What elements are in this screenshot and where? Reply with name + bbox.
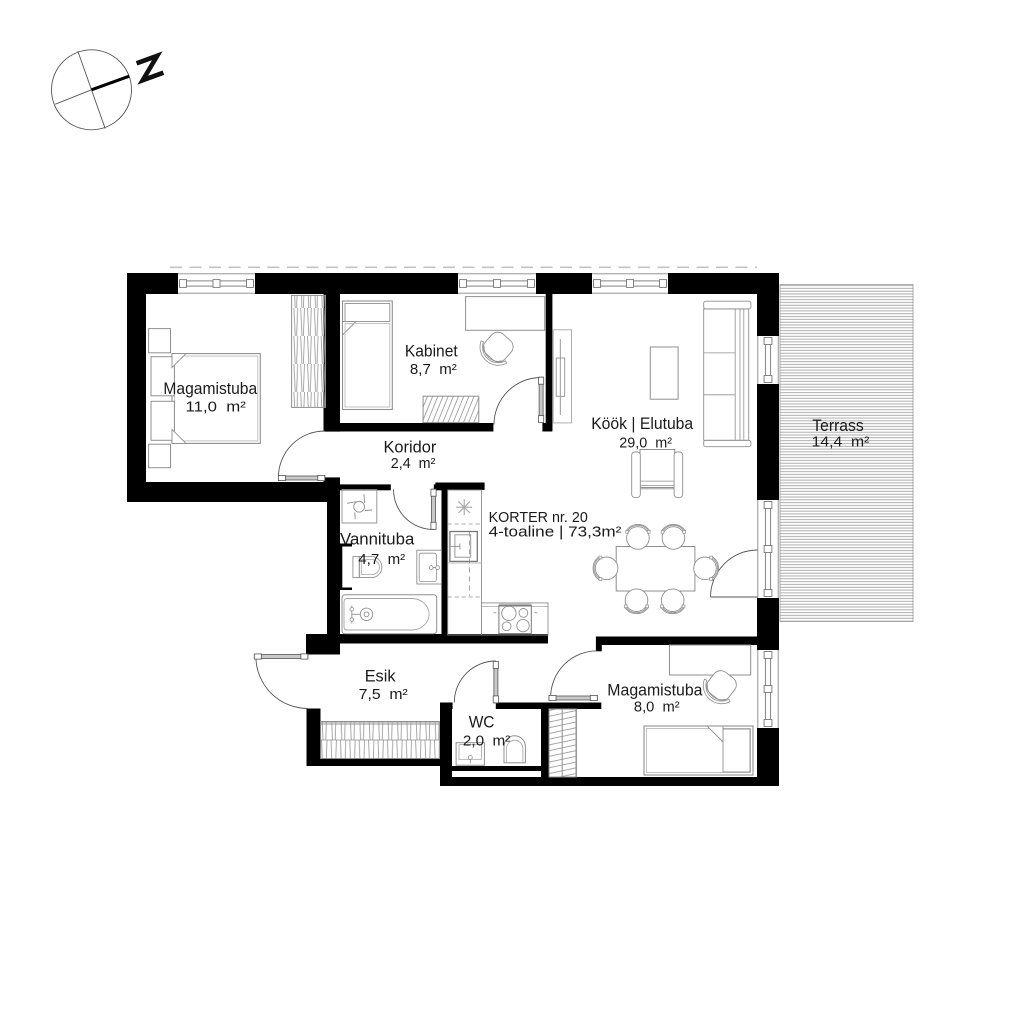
svg-text:Köök | Elutuba: Köök | Elutuba: [591, 414, 693, 433]
svg-text:8,7 m²: 8,7 m²: [410, 362, 457, 378]
svg-text:Terrass: Terrass: [812, 416, 863, 435]
svg-text:Esik: Esik: [365, 667, 396, 686]
svg-text:11,0 m²: 11,0 m²: [186, 399, 247, 415]
svg-text:Koridor: Koridor: [384, 438, 437, 457]
svg-text:4,7 m²: 4,7 m²: [358, 552, 405, 568]
svg-text:Kabinet: Kabinet: [405, 342, 458, 361]
svg-text:8,0 m²: 8,0 m²: [634, 700, 680, 716]
svg-text:WC: WC: [469, 712, 495, 731]
svg-text:2,4 m²: 2,4 m²: [391, 456, 436, 472]
svg-text:29,0 m²: 29,0 m²: [619, 435, 672, 451]
svg-text:2,0 m²: 2,0 m²: [463, 733, 511, 749]
svg-text:Magamistuba: Magamistuba: [163, 379, 257, 398]
svg-text:KORTER nr. 20: KORTER nr. 20: [489, 510, 588, 526]
svg-text:Magamistuba: Magamistuba: [607, 680, 703, 699]
svg-text:4-toaline | 73,3m²: 4-toaline | 73,3m²: [489, 525, 622, 541]
svg-text:Vannituba: Vannituba: [340, 529, 415, 548]
svg-text:7,5 m²: 7,5 m²: [359, 687, 408, 703]
svg-text:14,4 m²: 14,4 m²: [812, 435, 870, 451]
